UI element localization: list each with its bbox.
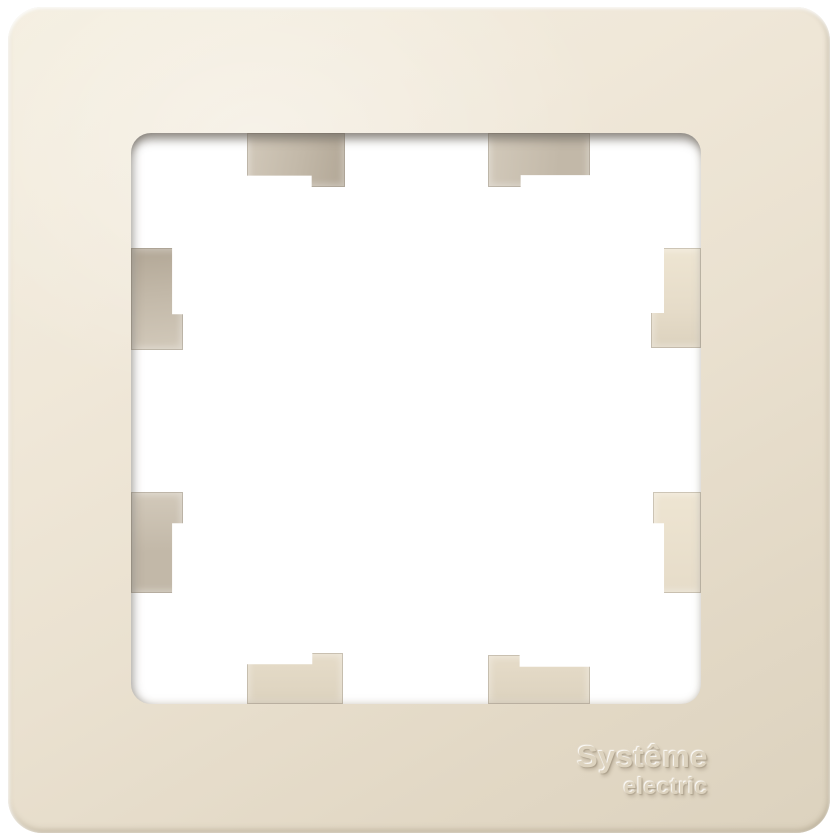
mounting-tab-top-right: [488, 133, 590, 187]
brand-name: Systême: [560, 741, 708, 774]
switch-frame: Systême electric: [8, 7, 830, 833]
frame-window-cutout: [131, 133, 701, 704]
mounting-tab-bottom-right: [488, 655, 590, 704]
product-photo: Systême electric: [0, 0, 838, 840]
mounting-tab-left-lower: [131, 492, 183, 593]
mounting-tab-right-lower: [653, 492, 701, 593]
mounting-tab-left-upper: [131, 248, 183, 350]
mounting-tab-bottom-left: [247, 653, 343, 704]
brand-subname: electric: [560, 775, 708, 798]
cutout-edge-shadow: [131, 133, 701, 704]
brand-logo: Systême electric: [560, 741, 708, 798]
mounting-tab-top-left: [247, 133, 345, 187]
mounting-tab-right-upper: [651, 248, 701, 348]
